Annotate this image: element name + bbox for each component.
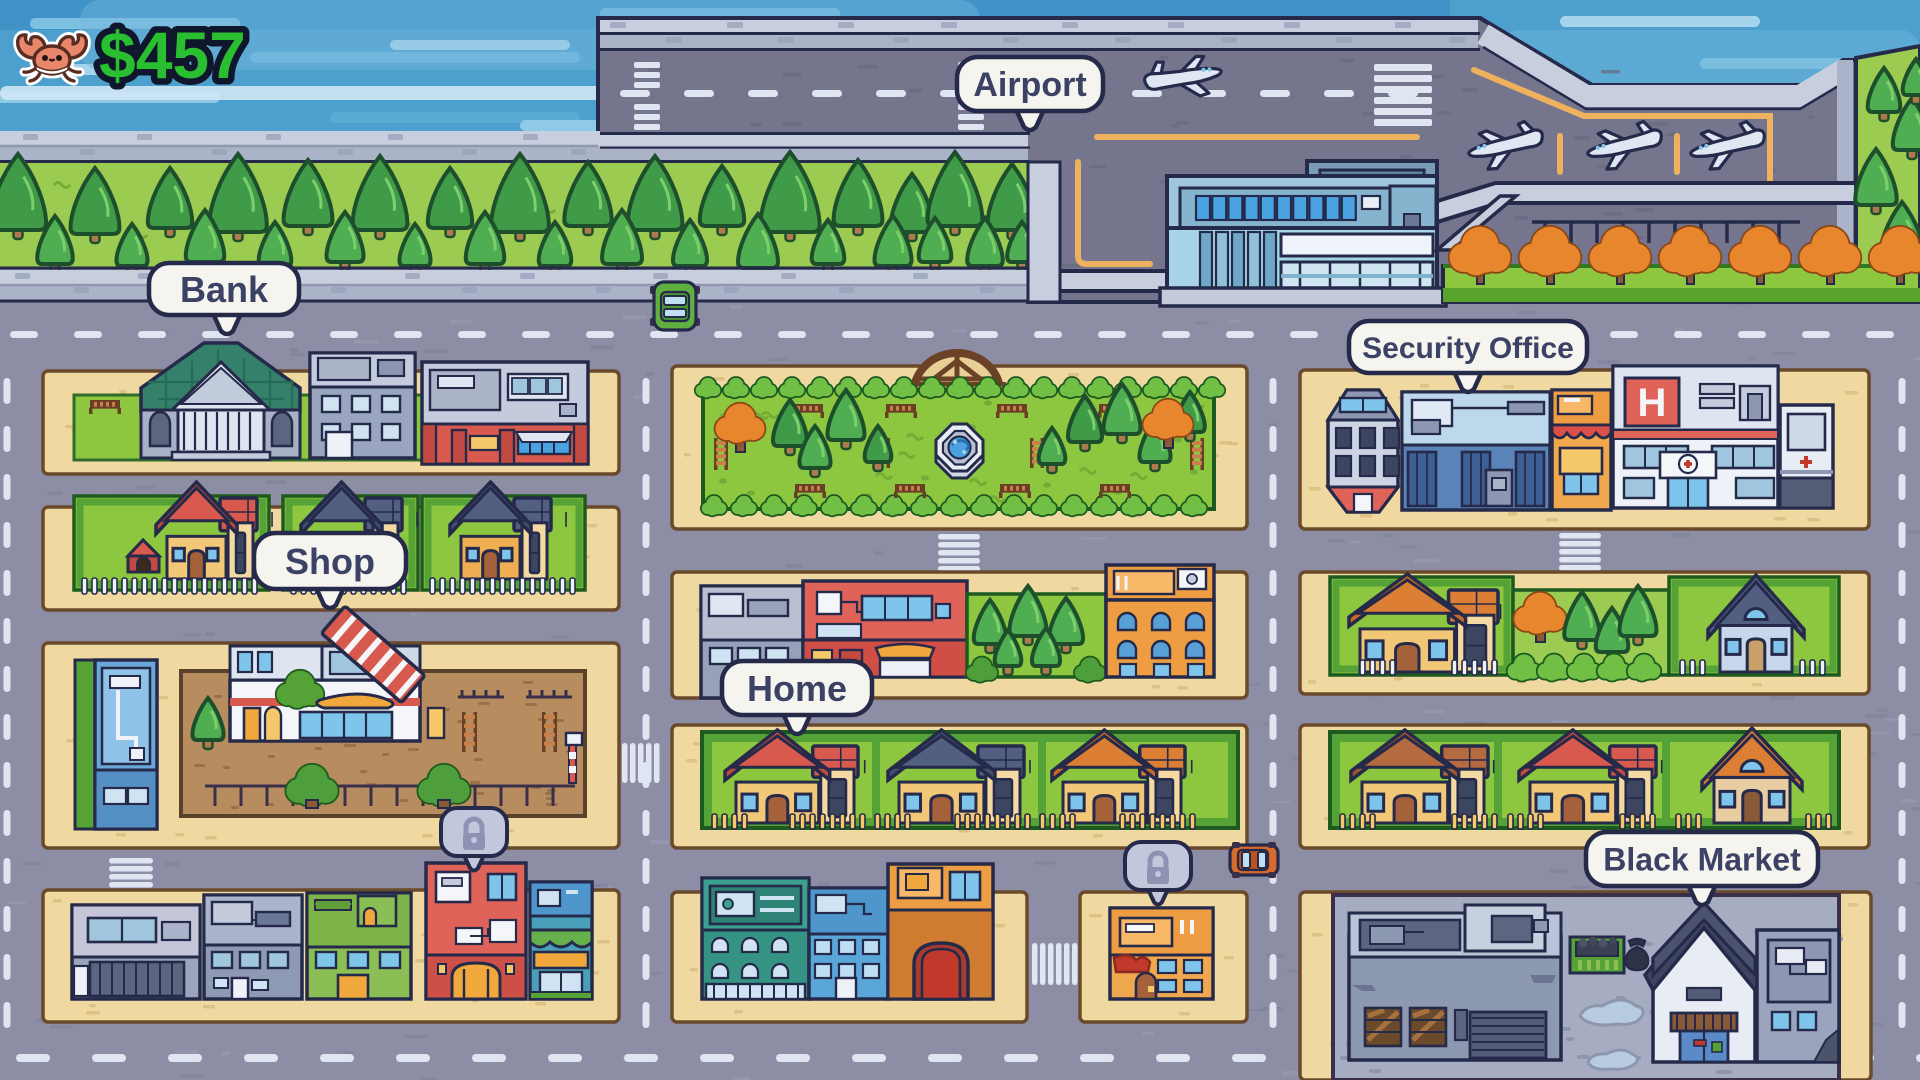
svg-text:Bank: Bank [180, 269, 269, 310]
svg-text:Airport: Airport [973, 66, 1086, 104]
svg-text:Home: Home [747, 668, 847, 709]
svg-text:Shop: Shop [285, 541, 375, 582]
svg-text:H: H [1638, 381, 1667, 425]
svg-text:Black Market: Black Market [1603, 842, 1801, 878]
svg-text:Security Office: Security Office [1362, 332, 1574, 365]
svg-text:$457: $457 [99, 18, 246, 92]
